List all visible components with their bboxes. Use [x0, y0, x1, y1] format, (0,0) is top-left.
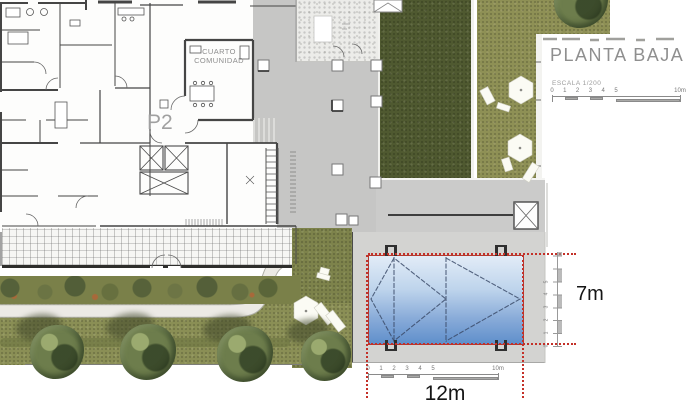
swimming-pool	[368, 255, 524, 345]
room-label-line2: COMUNIDAD	[186, 56, 252, 65]
roof-mark	[374, 0, 402, 12]
dimension-line-right	[522, 255, 524, 398]
roof-edge-dashes	[543, 39, 674, 40]
pool-side-scale-bar: 012345	[550, 252, 566, 347]
pool-ladder	[385, 340, 397, 351]
pool-height-dimension: 7m	[576, 283, 604, 306]
scale-bar	[368, 374, 498, 380]
site-plan-drawing: PLANTA BAJA ESCALA 1/200 012345 10m 0123…	[0, 0, 700, 415]
scale-bar	[552, 96, 680, 102]
room-label: CUARTO COMUNIDAD	[186, 47, 252, 65]
pool-bottom-scale-bar: 012345 10m	[368, 366, 498, 380]
pool-ladder	[495, 340, 507, 351]
scale-label: ESCALA 1/200	[552, 80, 601, 87]
scale-bar-end-label: 10m	[674, 88, 686, 94]
structural-column-x	[514, 202, 538, 229]
dimension-line-top	[368, 253, 576, 255]
page-title: PLANTA BAJA	[550, 45, 684, 66]
pool-width-dimension: 12m	[400, 382, 490, 406]
scale-bar-ticks: 012345	[368, 366, 498, 374]
scale-bar-ticks: 012345	[550, 252, 566, 347]
column-marker	[258, 60, 382, 225]
unit-label: P2	[147, 111, 173, 135]
pool-cover-pattern	[369, 256, 522, 343]
scale-bar-ticks: 012345	[552, 88, 680, 96]
scale-bar-end-label: 10m	[492, 366, 504, 372]
title-scale-bar: 012345 10m	[552, 88, 680, 102]
room-label-line1: CUARTO	[186, 47, 252, 56]
